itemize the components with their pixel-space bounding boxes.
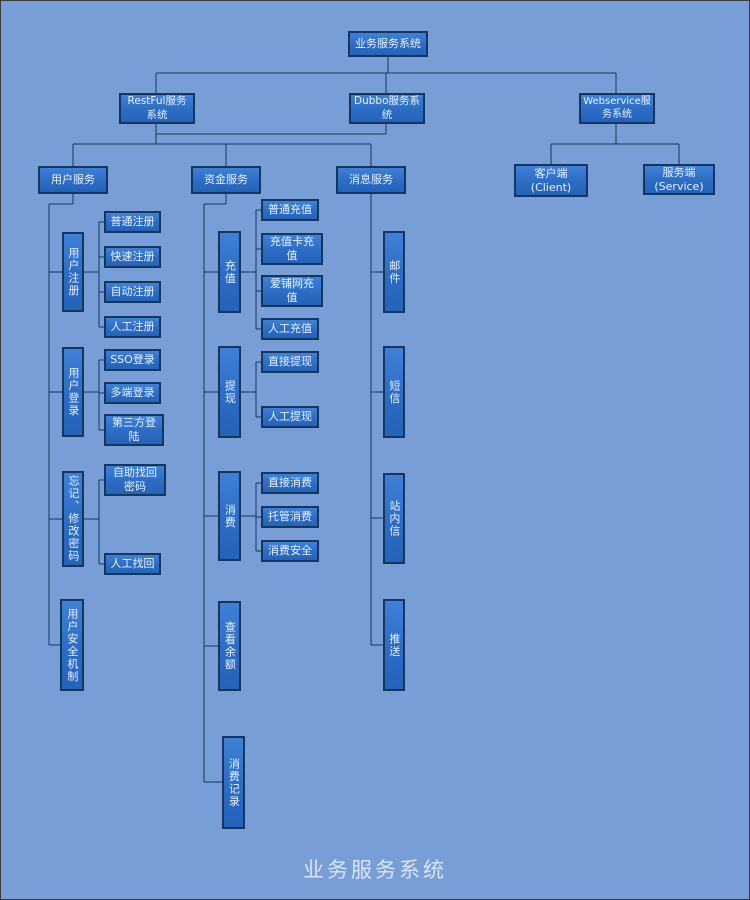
node-sms-label: 短信 xyxy=(387,380,401,405)
node-user-service-label: 用户服务 xyxy=(51,173,95,187)
node-recharge-label: 充值 xyxy=(223,260,237,285)
org-chart-canvas: 业务服务系统 RestFul服务 系统 Dubbo服务系 统 Webservic… xyxy=(0,0,750,900)
node-user-security: 用户安全机制 xyxy=(60,599,84,691)
node-user-login: 用户登录 xyxy=(62,347,84,437)
node-login-sso: SSO登录 xyxy=(104,349,161,371)
node-register-normal: 普通注册 xyxy=(104,211,161,233)
node-login-third-party: 第三方登 陆 xyxy=(104,414,164,446)
node-recharge-manual-label: 人工充值 xyxy=(268,322,312,336)
node-forgot-modify-password-label: 忘记、修改密码 xyxy=(66,475,80,563)
node-server-label: 服务端 (Service) xyxy=(654,166,703,194)
node-dubbo-service-system: Dubbo服务系 统 xyxy=(349,93,425,124)
node-consume-record-label: 消费记录 xyxy=(227,758,241,808)
node-consume-safe-label: 消费安全 xyxy=(268,544,312,558)
node-client-label: 客户端 (Client) xyxy=(531,167,571,195)
node-register-fast-label: 快速注册 xyxy=(111,250,155,264)
node-mail: 邮件 xyxy=(383,231,405,313)
node-withdraw-direct-label: 直接提现 xyxy=(268,355,312,369)
node-recharge-card: 充值卡充 值 xyxy=(261,233,323,265)
node-withdraw-manual-label: 人工提现 xyxy=(268,410,312,424)
node-recharge-aipu-label: 爱铺网充 值 xyxy=(270,277,314,305)
node-dubbo-label: Dubbo服务系 统 xyxy=(354,95,420,121)
node-consume-direct: 直接消费 xyxy=(261,472,319,494)
node-consume-label: 消费 xyxy=(223,504,237,529)
node-root-business-service-system: 业务服务系统 xyxy=(348,31,428,57)
node-consume-trust: 托管消费 xyxy=(261,506,319,528)
node-recharge: 充值 xyxy=(218,231,241,313)
node-user-register-label: 用户注册 xyxy=(66,247,80,297)
node-check-balance: 查看余额 xyxy=(218,601,241,691)
node-webservice-label: Webservice服 务系统 xyxy=(583,96,651,121)
node-find-back-self-label: 自助找回 密码 xyxy=(113,466,157,494)
diagram-footer-title: 业务服务系统 xyxy=(1,854,749,884)
node-recharge-card-label: 充值卡充 值 xyxy=(270,235,314,263)
node-fund-service-label: 资金服务 xyxy=(204,173,248,187)
node-root-label: 业务服务系统 xyxy=(355,37,421,51)
node-server: 服务端 (Service) xyxy=(643,164,715,195)
node-withdraw-label: 提现 xyxy=(223,380,237,405)
node-recharge-normal: 普通充值 xyxy=(261,199,319,221)
node-sms: 短信 xyxy=(383,346,405,438)
node-consume-safe: 消费安全 xyxy=(261,540,319,562)
node-user-login-label: 用户登录 xyxy=(66,367,80,417)
node-login-sso-label: SSO登录 xyxy=(110,353,155,367)
node-site-message: 站内信 xyxy=(383,473,405,564)
node-register-manual-label: 人工注册 xyxy=(111,320,155,334)
node-login-third-party-label: 第三方登 陆 xyxy=(112,416,156,444)
node-mail-label: 邮件 xyxy=(387,260,401,285)
node-register-normal-label: 普通注册 xyxy=(111,215,155,229)
node-login-multi-label: 多端登录 xyxy=(111,386,155,400)
node-forgot-modify-password: 忘记、修改密码 xyxy=(62,471,84,567)
node-find-back-manual-label: 人工找回 xyxy=(111,557,155,571)
node-user-security-label: 用户安全机制 xyxy=(65,608,79,683)
node-restful-label: RestFul服务 系统 xyxy=(128,95,187,121)
node-client: 客户端 (Client) xyxy=(514,164,588,197)
node-register-manual: 人工注册 xyxy=(104,316,161,338)
node-recharge-aipu: 爱铺网充 值 xyxy=(261,275,323,307)
node-withdraw-direct: 直接提现 xyxy=(261,351,319,373)
node-register-auto-label: 自动注册 xyxy=(111,285,155,299)
node-message-service: 消息服务 xyxy=(336,166,406,194)
node-push-label: 推送 xyxy=(387,633,401,658)
node-user-service: 用户服务 xyxy=(38,166,108,194)
node-consume-direct-label: 直接消费 xyxy=(268,476,312,490)
node-user-register: 用户注册 xyxy=(62,232,84,312)
connector-lines xyxy=(1,1,750,900)
node-login-multi: 多端登录 xyxy=(104,382,161,404)
node-withdraw: 提现 xyxy=(218,346,241,438)
node-restful-service-system: RestFul服务 系统 xyxy=(119,93,195,124)
node-message-service-label: 消息服务 xyxy=(349,173,393,187)
node-find-back-manual: 人工找回 xyxy=(104,553,161,575)
node-check-balance-label: 查看余额 xyxy=(223,621,237,671)
node-withdraw-manual: 人工提现 xyxy=(261,406,319,428)
node-register-auto: 自动注册 xyxy=(104,281,161,303)
node-webservice-service-system: Webservice服 务系统 xyxy=(579,93,655,124)
node-recharge-manual: 人工充值 xyxy=(261,318,319,340)
node-register-fast: 快速注册 xyxy=(104,246,161,268)
node-consume: 消费 xyxy=(218,471,241,561)
node-consume-record: 消费记录 xyxy=(222,736,245,829)
node-find-back-self: 自助找回 密码 xyxy=(104,464,166,496)
node-consume-trust-label: 托管消费 xyxy=(268,510,312,524)
node-recharge-normal-label: 普通充值 xyxy=(268,203,312,217)
node-push: 推送 xyxy=(383,599,405,691)
node-site-message-label: 站内信 xyxy=(387,500,401,538)
node-fund-service: 资金服务 xyxy=(191,166,261,194)
